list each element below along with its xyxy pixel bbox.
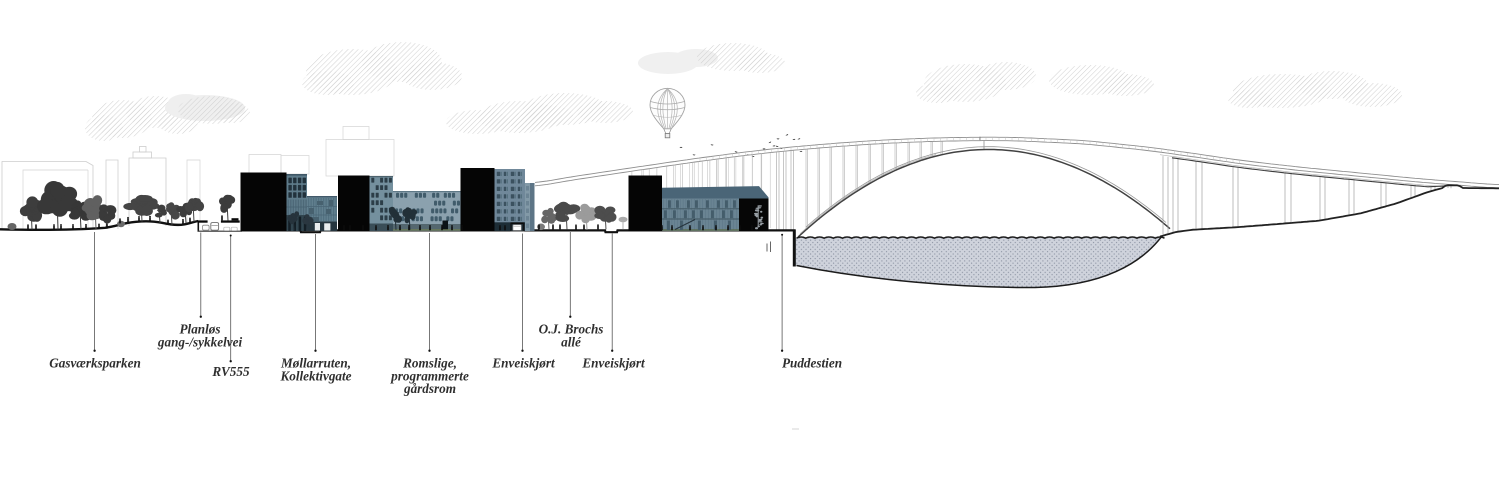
svg-text:Puddestien: Puddestien [782, 356, 842, 371]
svg-text:Kollektivgate: Kollektivgate [279, 368, 351, 383]
svg-text:gårdsrom: gårdsrom [403, 381, 456, 396]
svg-text:Enveiskjørt: Enveiskjørt [581, 356, 645, 371]
svg-text:gang-/sykkelvei: gang-/sykkelvei [157, 334, 243, 349]
svg-text:allé: allé [561, 334, 582, 349]
svg-text:Enveiskjørt: Enveiskjørt [491, 356, 555, 371]
svg-text:Gasværksparken: Gasværksparken [49, 356, 141, 371]
svg-text:RV555: RV555 [211, 364, 250, 379]
